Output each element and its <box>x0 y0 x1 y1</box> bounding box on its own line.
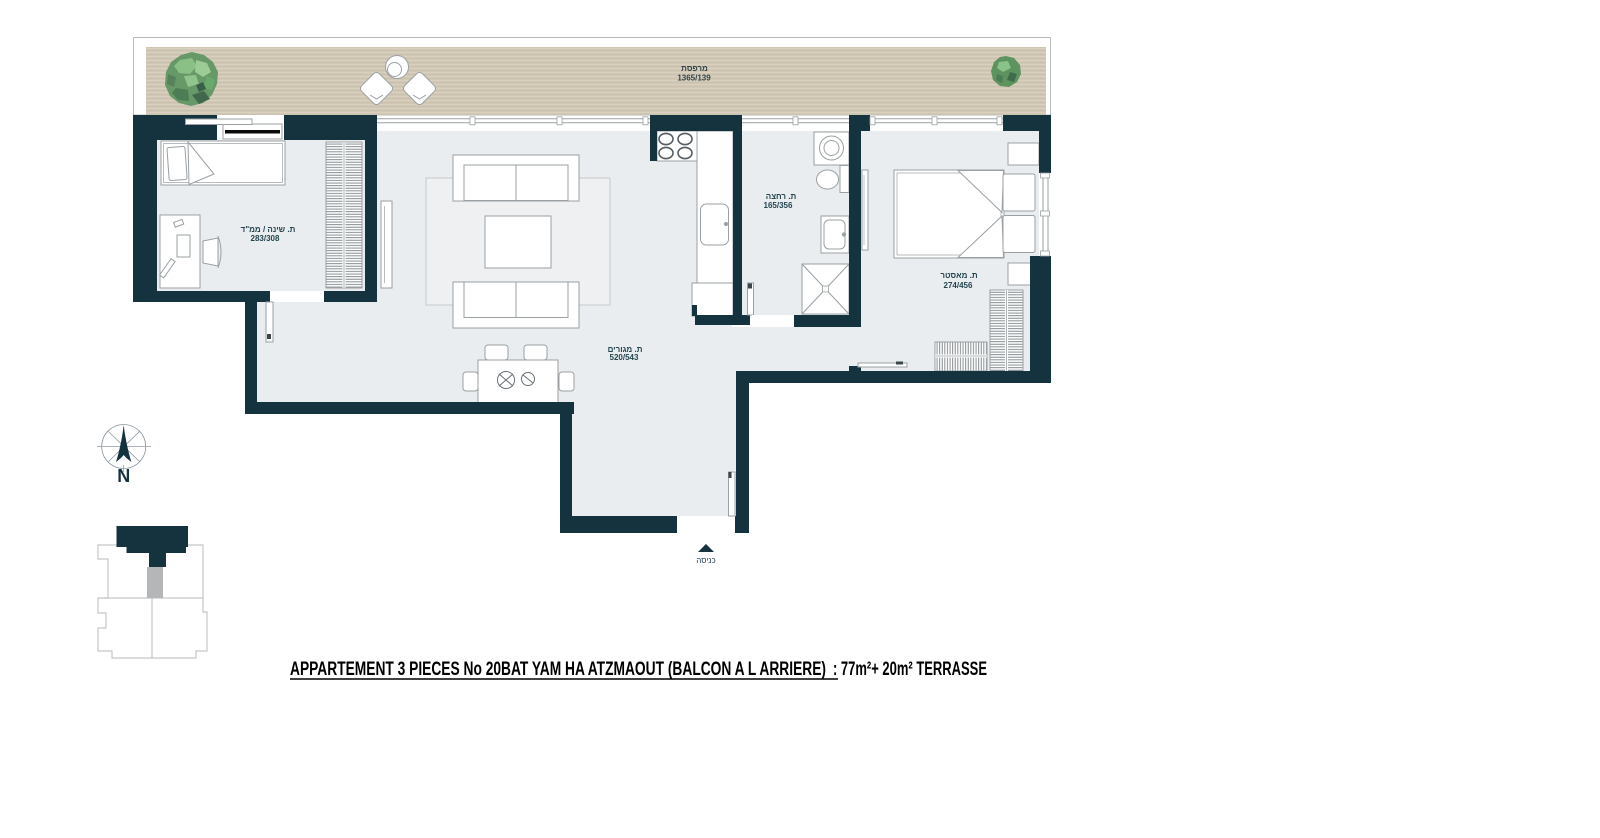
svg-text:165/356: 165/356 <box>764 201 793 210</box>
svg-text:מרפסת: מרפסת <box>681 64 708 73</box>
svg-text:: 77m²+ 20m² TERRASSE: : 77m²+ 20m² TERRASSE <box>833 659 987 680</box>
svg-text:N: N <box>117 466 130 486</box>
svg-text:1365/139: 1365/139 <box>677 74 711 83</box>
svg-text:283/308: 283/308 <box>251 234 280 243</box>
svg-text:כניסה: כניסה <box>696 556 715 565</box>
svg-text:274/456: 274/456 <box>944 281 973 290</box>
svg-text:ת. מאסטר: ת. מאסטר <box>940 271 977 280</box>
svg-text:ת. שינה / ממ"ד: ת. שינה / ממ"ד <box>241 225 296 234</box>
svg-text:ת. רחצה: ת. רחצה <box>766 192 797 201</box>
svg-text:APPARTEMENT 3 PIECES No 20BAT: APPARTEMENT 3 PIECES No 20BAT YAM HA ATZ… <box>290 659 826 680</box>
svg-text:520/543: 520/543 <box>610 353 639 362</box>
